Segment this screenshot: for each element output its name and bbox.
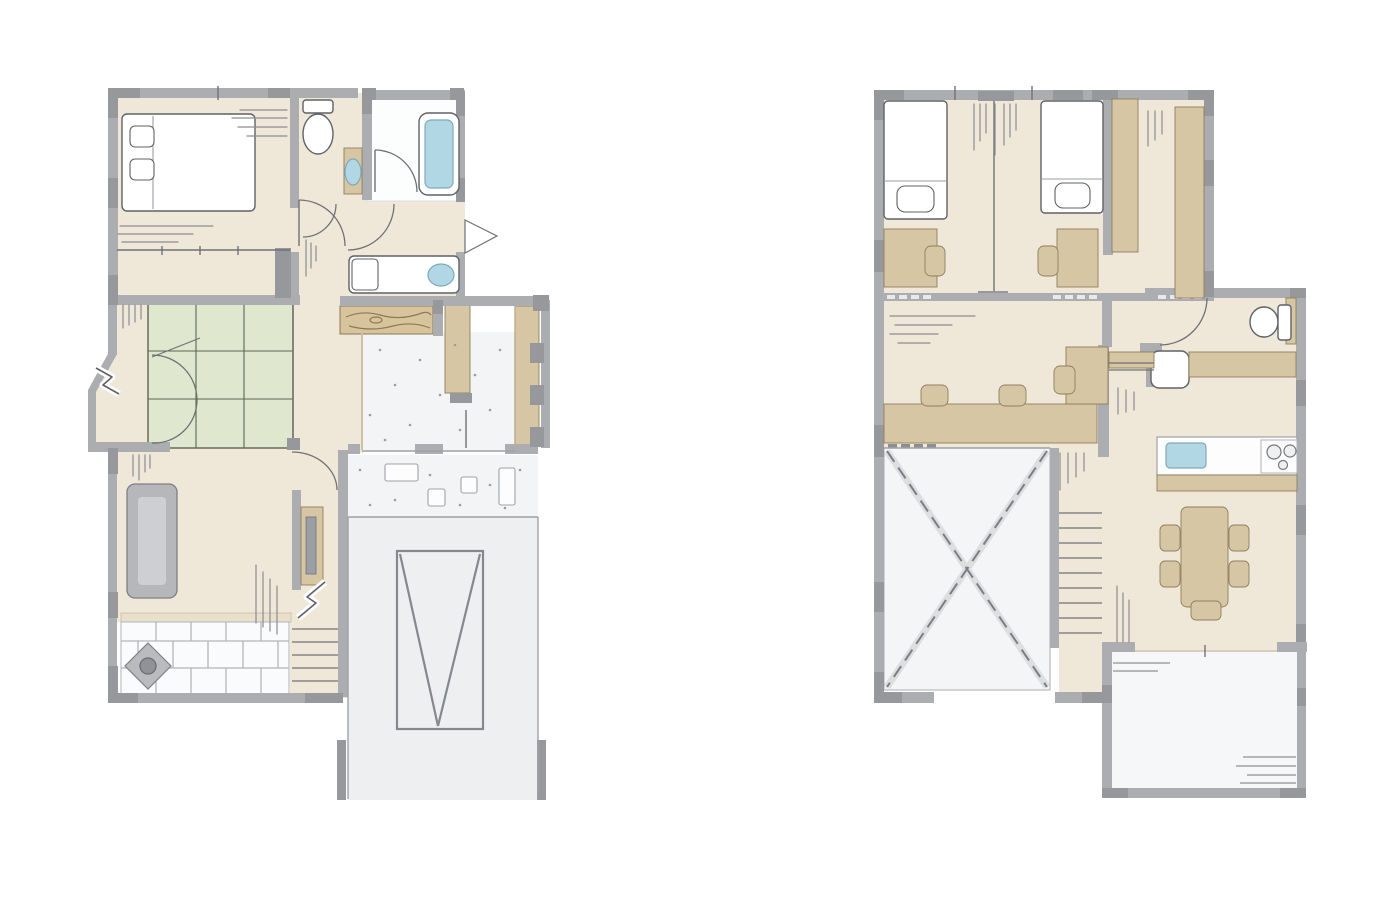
balcony-wall [1102,642,1135,652]
wall-pier [1280,788,1306,798]
balcony-wall [1102,652,1112,798]
floor-speckle [459,504,462,507]
washbasin [1151,351,1189,388]
driveway-floor [348,517,538,800]
wall-pier [456,92,465,116]
wall-pier [268,88,290,98]
stove-burner [1267,445,1281,459]
floor-speckle [489,409,492,412]
study-counter [884,404,1097,443]
counter-chair [999,385,1026,406]
wall-pier [530,427,544,447]
wall-pier [305,693,343,703]
stair-landing [1109,352,1154,368]
floor-plan-image [0,0,1400,909]
sliding-door-dash [1053,295,1061,299]
wall-pier [108,448,118,474]
dining-chair [1160,525,1180,551]
wall-pier [1297,688,1306,706]
pillow [130,126,154,147]
wall-pier [978,91,1014,101]
sofa-seat [138,497,166,585]
bathtub-water [425,120,453,188]
wall-segment [108,295,300,305]
wall-segment [541,300,550,448]
threshold-segment [348,444,360,454]
threshold-segment [415,444,443,454]
toilet-tank [1278,305,1291,340]
bay-floor [92,352,150,444]
floor-speckle [429,474,432,477]
entry-cabinet [445,303,470,393]
porch-stone [428,489,445,506]
wall-pier [433,300,443,314]
sliding-door-dash [899,295,907,299]
dining-table [1181,507,1228,607]
kitchen-cabinet [1157,475,1297,491]
wall-pier [1092,90,1118,100]
wall-segment [290,98,299,208]
second-floor-plan [874,86,1307,798]
wall-pier [874,90,884,120]
floor-speckle [504,507,507,510]
wall-segment [362,90,465,100]
wall-segment [338,450,348,697]
floor-speckle [409,424,412,427]
stepping-stone-center [140,658,156,674]
floor-speckle [369,414,372,417]
wall-pier [108,88,118,118]
wall-pier [1290,288,1306,298]
kitchen-sink [1166,443,1206,468]
sliding-door-dash [923,295,931,299]
wall-pier [108,275,118,305]
closet [1112,99,1138,252]
entry-step [121,613,291,622]
entry-doma-floor [362,332,515,451]
wall-pier [1204,271,1214,297]
wall-pier [450,393,472,403]
counter-chair [1054,366,1075,394]
wall-pier [1102,788,1128,798]
floor-speckle [359,469,362,472]
wall-pier [874,692,902,703]
wall-pier [1204,90,1214,116]
wall-pier [874,582,884,612]
wall-segment [108,88,358,98]
pillow [1055,183,1090,208]
wall-segment [1102,295,1112,347]
floor-speckle [384,439,387,442]
floor-speckle [369,504,372,507]
cabinet-slot [306,517,316,574]
wall-pier [108,666,118,696]
pillow [130,159,154,180]
stove-burner [1279,461,1288,470]
wall-pier [874,425,884,457]
balcony-wall [1297,642,1306,798]
tatami-mat [148,303,293,448]
first-floor-plan [88,86,550,800]
sliding-door-dash [911,295,919,299]
wall-pier [362,92,372,114]
dining-chair [1191,601,1221,620]
wash-counter [1189,352,1296,377]
wall-pier [108,178,118,208]
wall-segment [440,296,549,306]
wall-pier [287,438,300,450]
porch-stone [461,477,477,493]
closet [1175,107,1204,298]
veranda-deck [515,306,539,446]
toilet-bowl [1250,307,1278,337]
washroom-door-wedge [465,220,497,253]
porch-stone [385,464,418,481]
wall-segment [1145,288,1305,298]
toilet-bowl [303,114,333,154]
floor-plan-canvas [0,0,1400,909]
desk-chair [925,246,945,276]
floor-speckle [499,349,502,352]
wall-segment [108,297,117,355]
dining-chair [1229,561,1249,587]
stair-floor [1059,448,1103,692]
floor-speckle [394,499,397,502]
floor-speckle [519,469,522,472]
desk-chair [1038,246,1058,276]
wall-segment [874,90,1214,100]
pillow [897,186,934,212]
wall-segment [1050,448,1059,648]
wall-pier [530,343,544,363]
wall-pier [275,248,291,298]
sliding-door-dash [1158,295,1166,299]
hand-wash-sink [345,159,361,185]
counter-chair [921,385,948,406]
floor-speckle [394,384,397,387]
vanity-sink [428,264,454,286]
floor-speckle [419,359,422,362]
wall-pier [108,693,138,703]
wall-pier [1296,380,1306,406]
dining-chair [1160,561,1180,587]
toilet-tank [303,100,333,113]
wall-segment [1204,90,1214,297]
wall-pier [1296,505,1306,535]
wall-segment [1103,97,1113,255]
stove-burner [1284,445,1296,457]
balcony-wall [1102,788,1306,798]
sliding-door-dash [1065,295,1073,299]
gate-post [337,740,346,800]
dining-chair [1229,525,1249,551]
wall-pier [533,295,549,311]
wall-pier [108,592,118,618]
sliding-door-dash [1077,295,1085,299]
porch-stone [499,468,515,505]
wood-closet [340,306,433,334]
floor-speckle [454,344,457,347]
sliding-door-dash [1089,295,1097,299]
wall-pier [530,385,544,405]
wall-segment [292,490,301,590]
floor-speckle [489,484,492,487]
wall-segment [290,252,299,297]
floor-speckle [439,394,442,397]
floor-speckle [474,374,477,377]
vanity-cabinet [352,259,378,290]
wall-pier [1102,685,1112,703]
floor-speckle [379,349,382,352]
wall-pier [1204,160,1214,186]
desk [1057,229,1098,287]
sliding-door-dash [887,295,895,299]
wall-pier [874,240,884,272]
wall-pier [1053,90,1083,100]
floor-speckle [459,429,462,432]
